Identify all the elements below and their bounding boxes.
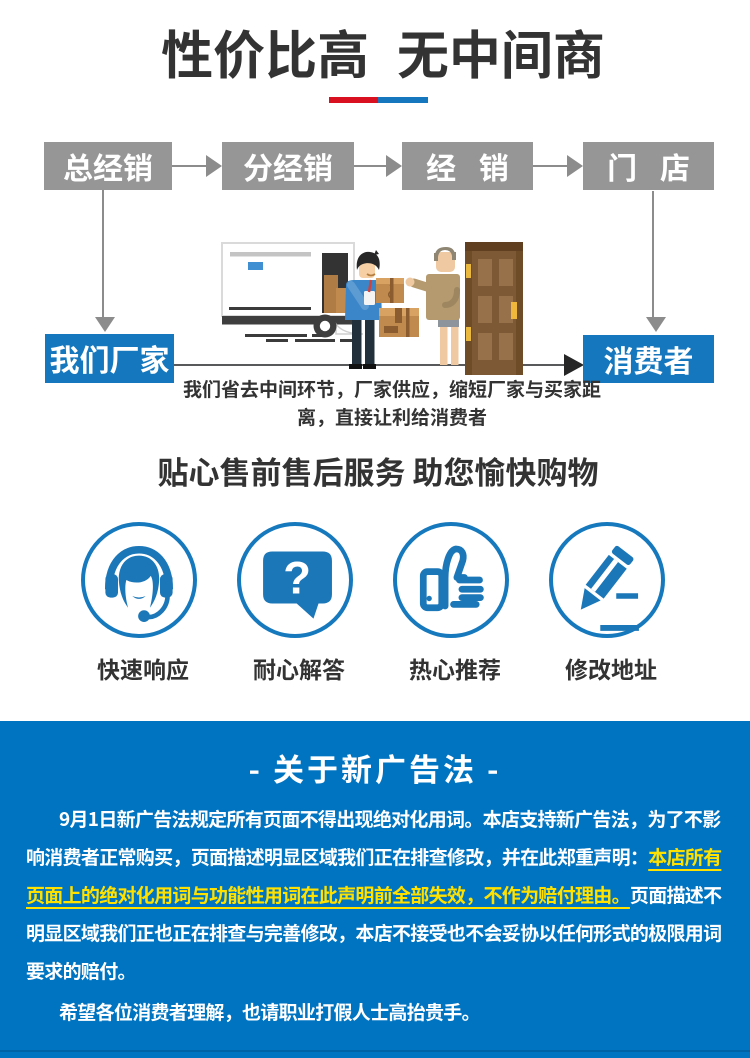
svg-text:?: ? xyxy=(283,552,311,603)
